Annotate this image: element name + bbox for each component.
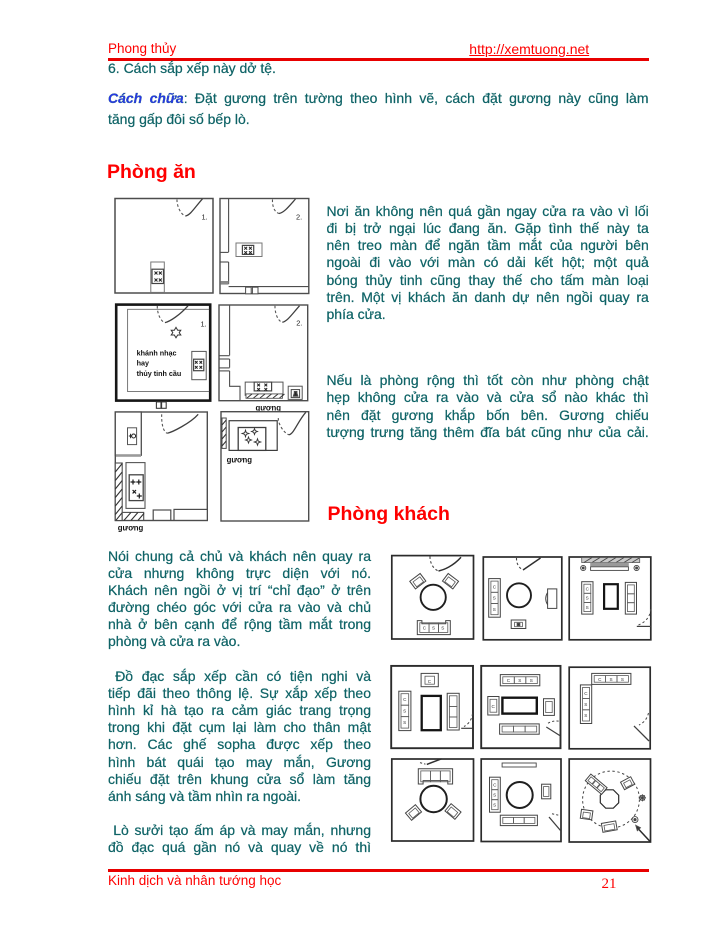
svg-text:S: S xyxy=(432,626,435,631)
svg-text:hay: hay xyxy=(137,359,149,368)
svg-text:S: S xyxy=(493,793,496,798)
svg-text:gương: gương xyxy=(118,524,144,533)
svg-text:S: S xyxy=(493,596,496,601)
svg-text:S: S xyxy=(621,677,624,682)
svg-text:S: S xyxy=(586,605,589,610)
svg-text:S: S xyxy=(441,626,444,631)
svg-text:1.: 1. xyxy=(202,213,208,222)
svg-text:S: S xyxy=(584,713,587,718)
svg-text:S: S xyxy=(610,677,613,682)
svg-text:S: S xyxy=(493,803,496,808)
svg-text:thủy tinh cầu: thủy tinh cầu xyxy=(137,369,182,378)
svg-text:S: S xyxy=(403,720,406,725)
svg-text:khánh nhạc: khánh nhạc xyxy=(137,349,177,358)
svg-text:S: S xyxy=(586,596,589,601)
svg-text:S: S xyxy=(493,607,496,612)
svg-text:gương: gương xyxy=(227,456,253,465)
svg-text:1.: 1. xyxy=(201,320,207,329)
svg-text:S: S xyxy=(518,678,521,683)
svg-text:2.: 2. xyxy=(296,319,302,328)
svg-text:S: S xyxy=(530,678,533,683)
svg-text:2.: 2. xyxy=(296,213,302,222)
svg-text:S: S xyxy=(584,702,587,707)
svg-text:S: S xyxy=(403,709,406,714)
